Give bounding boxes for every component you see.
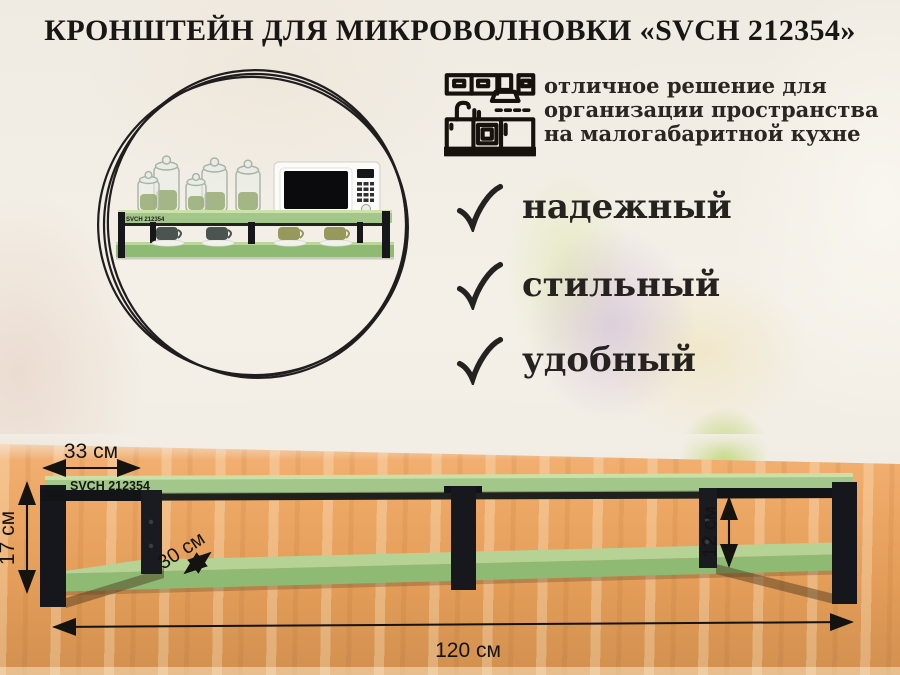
page-title: КРОНШТЕЙН ДЛЯ МИКРОВОЛНОВКИ «SVCH 212354… xyxy=(0,14,900,48)
hero-photo-circle: SVCH 212354 xyxy=(90,62,420,392)
feature-label: удобный xyxy=(522,338,696,382)
intro-line: организации пространства xyxy=(544,98,894,122)
check-icon xyxy=(456,182,504,232)
jar xyxy=(236,160,260,212)
feature-reliable: надежный xyxy=(456,182,732,232)
feature-label: стильный xyxy=(522,263,720,307)
left-inner-post xyxy=(150,222,156,243)
microwave-door-window xyxy=(284,171,348,209)
lower-board-front xyxy=(116,245,394,257)
right-bracket xyxy=(699,482,857,604)
check-icon xyxy=(456,335,504,385)
teacup xyxy=(202,227,234,246)
dim-label-12: 12 см xyxy=(699,506,721,558)
kitchen-icon xyxy=(444,66,536,158)
product-card: КРОНШТЕЙН ДЛЯ МИКРОВОЛНОВКИ «SVCH 212354… xyxy=(0,0,900,675)
right-outer-post xyxy=(382,211,390,258)
teacup xyxy=(320,227,352,246)
dim-label-120: 120 см xyxy=(435,639,501,662)
jar xyxy=(186,174,206,212)
jar xyxy=(138,172,159,212)
feature-convenient: удобный xyxy=(456,335,696,385)
microwave-display xyxy=(357,169,374,178)
intro-text: отличное решение для организации простра… xyxy=(544,74,894,146)
dim-label-17: 17 см xyxy=(0,511,19,565)
center-post xyxy=(248,222,255,244)
dim-arrow-120 xyxy=(54,622,852,627)
dimensions-photo: SVCH 212354 33 см 17 см 30 см 12 см 120 … xyxy=(0,430,900,675)
dim-label-33: 33 см xyxy=(64,440,118,463)
left-outer-post xyxy=(118,212,125,258)
check-icon xyxy=(456,260,504,310)
intro-line: на малогабаритной кухне xyxy=(544,122,894,146)
intro-line: отличное решение для xyxy=(544,74,894,98)
teacup xyxy=(274,227,306,246)
glass-jars xyxy=(138,156,260,212)
feature-stylish: стильный xyxy=(456,260,720,310)
right-inner-post xyxy=(357,222,363,243)
teacup xyxy=(152,227,184,246)
inset-shelf-code-label: SVCH 212354 xyxy=(126,217,165,223)
shelf-code-label: SVCH 212354 xyxy=(70,479,150,493)
feature-label: надежный xyxy=(522,185,732,229)
